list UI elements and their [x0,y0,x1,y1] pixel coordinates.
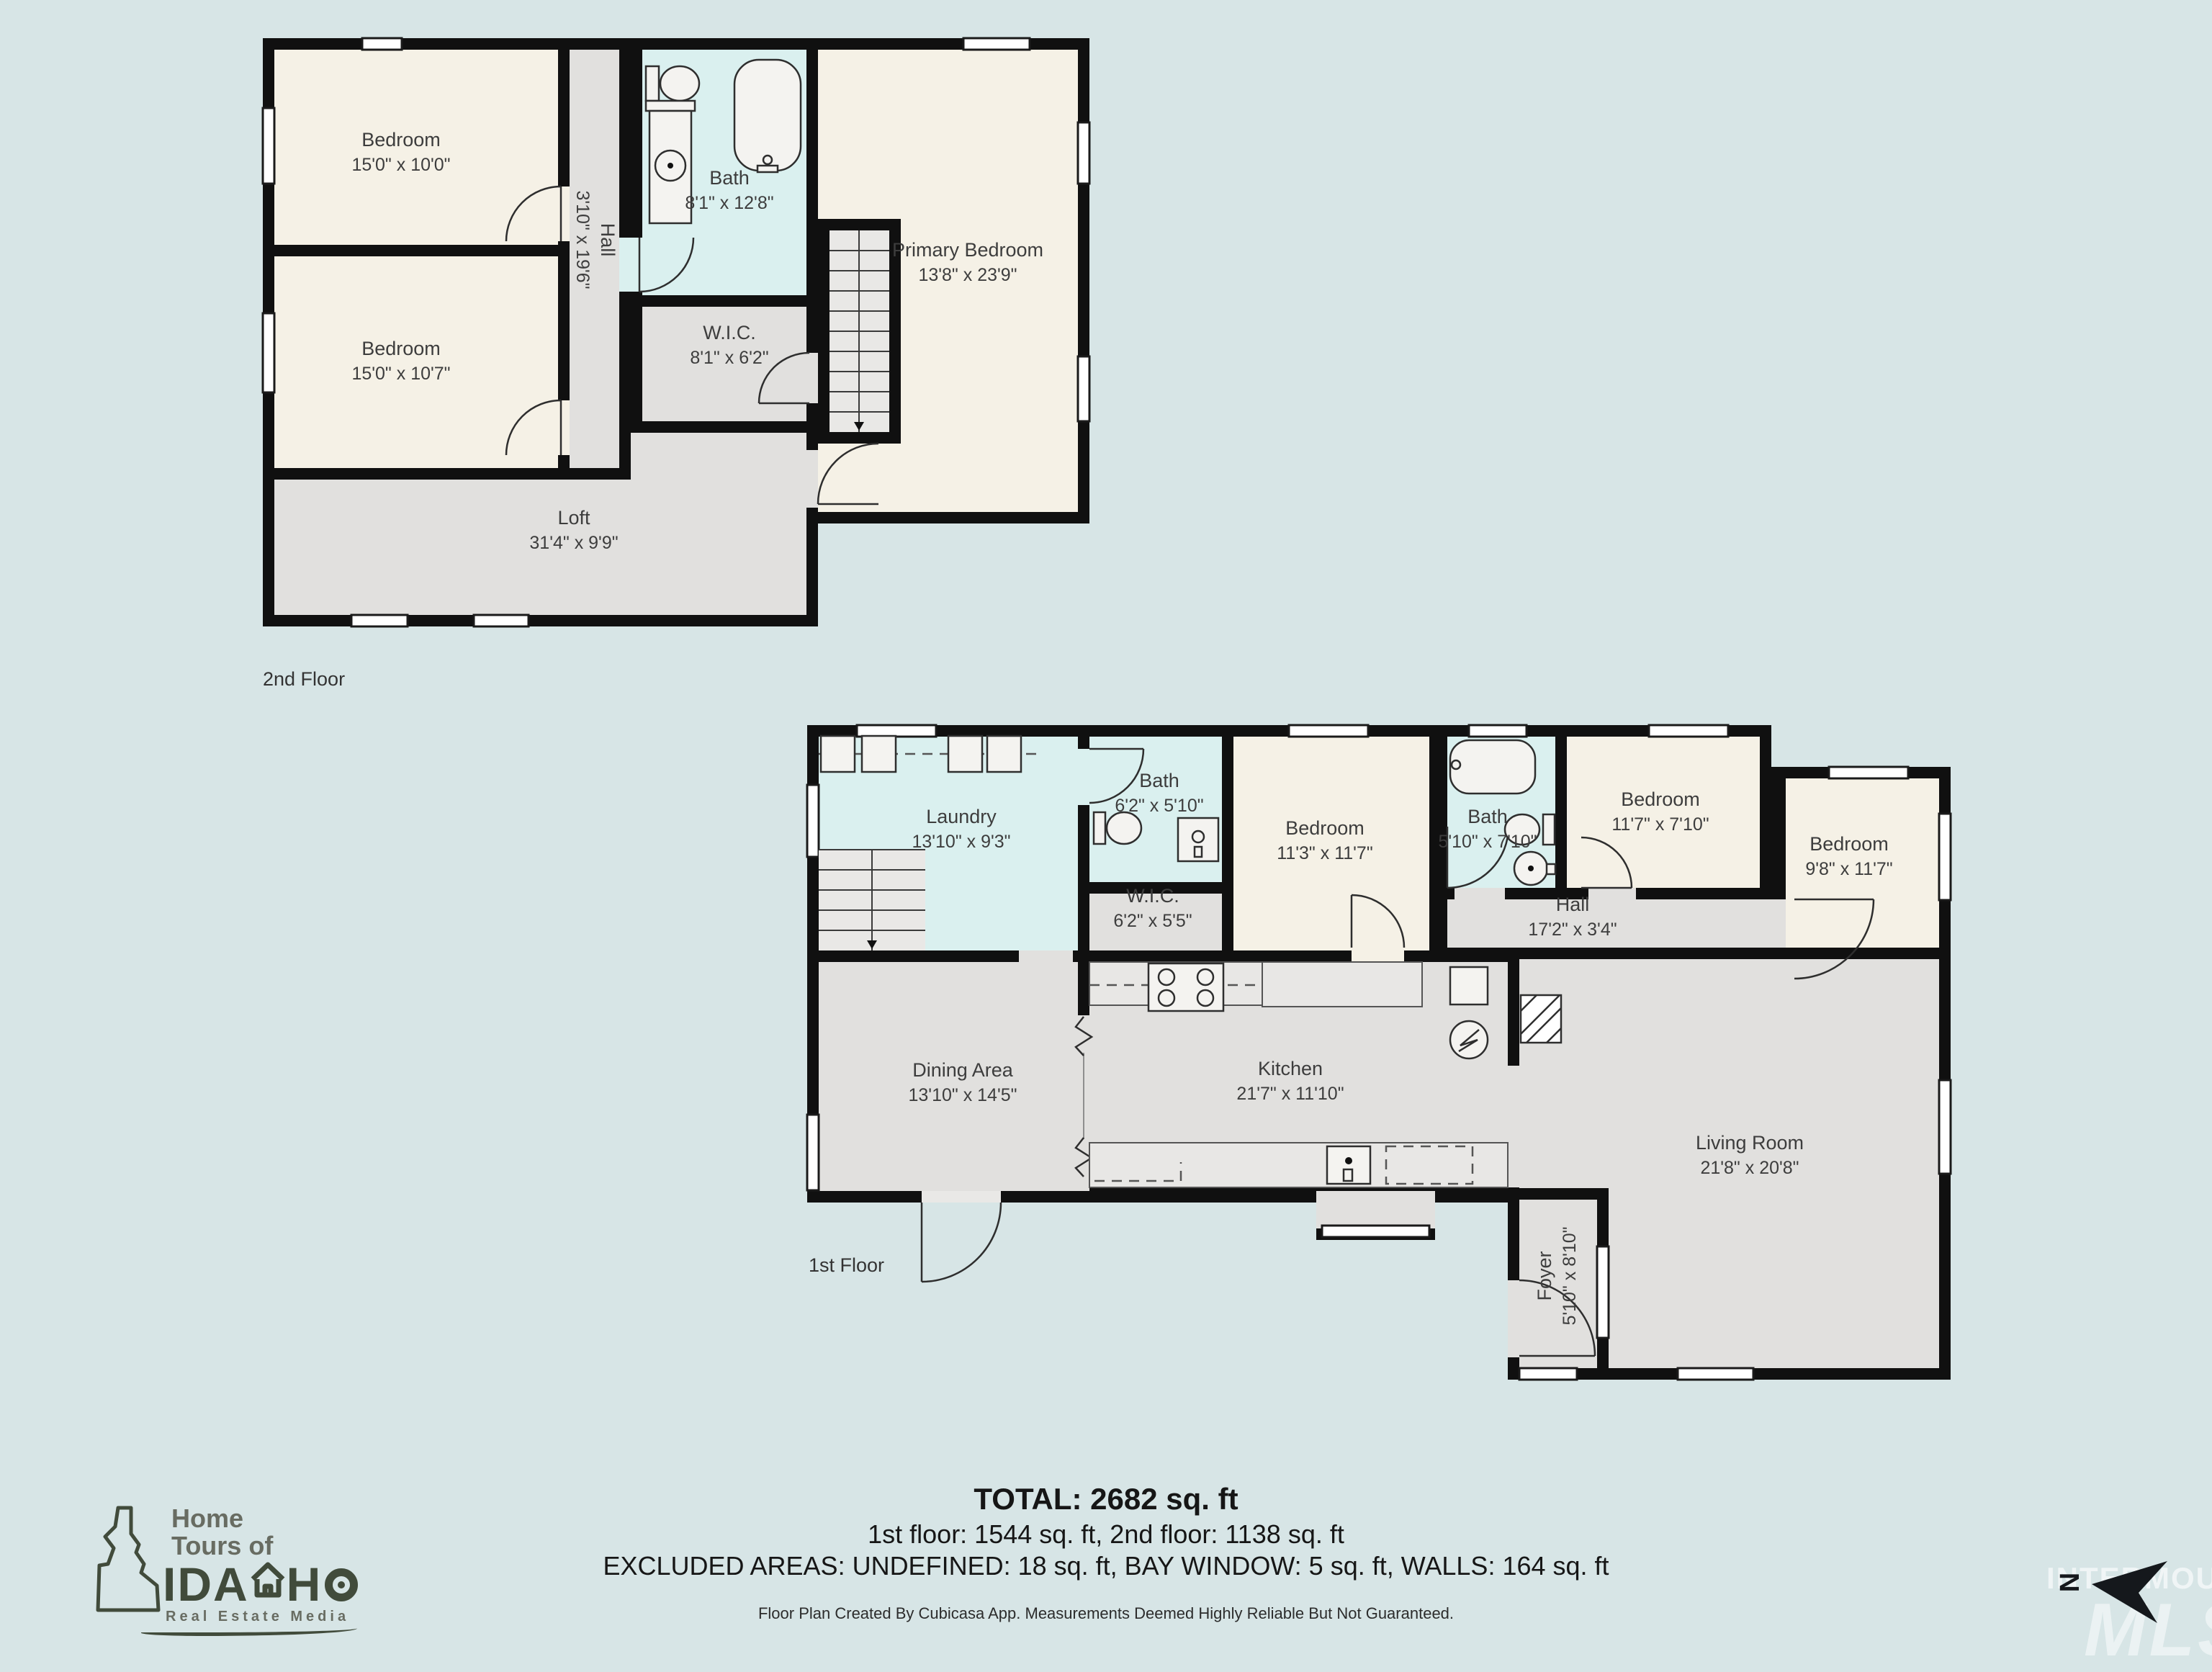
room-label-kitchen: Kitchen21'7" x 11'10" [1236,1056,1344,1107]
floor-label-1st: 1st Floor [809,1254,884,1277]
bathtub-icon [1450,740,1535,794]
logo-name-pre: IDA [163,1563,249,1606]
logo-name-post: H [287,1563,323,1606]
kitchen-sink-icon [1327,1146,1370,1184]
stairs-down [819,850,925,950]
room-label-bath-2nd: Bath8'1" x 12'8" [685,166,773,216]
room-label-primary-bedroom: Primary Bedroom13'8" x 23'9" [892,238,1043,288]
logo-name: IDAH [163,1560,358,1606]
room-label-foyer: Foyer5'10" x 8'10" [1532,1226,1583,1325]
room-label-bedroom-4: Bedroom11'7" x 7'10" [1611,787,1709,837]
logo-tagline: Real Estate Media [166,1609,358,1625]
floor-plan-canvas [0,0,2212,1659]
room-label-bedroom-2: Bedroom15'0" x 10'7" [351,336,450,387]
room-label-living-room: Living Room21'8" x 20'8" [1696,1131,1804,1181]
home-tours-of-idaho-logo: Home Tours of IDAH Real Estate Media [94,1505,358,1636]
room-label-wic-2nd: W.I.C.8'1" x 6'2" [690,320,768,371]
bay-window [1316,1191,1435,1237]
toilet-icon [646,66,699,101]
chimney-hatch [1521,995,1561,1043]
logo-underline [141,1625,357,1636]
room-label-laundry: Laundry13'10" x 9'3" [912,804,1010,855]
floor-label-2nd: 2nd Floor [263,668,345,691]
room-label-bedroom-5: Bedroom9'8" x 11'7" [1805,832,1892,882]
room-label-wic-1st: W.I.C.6'2" x 5'5" [1113,884,1192,934]
room-label-bath-2: Bath5'10" x 7'10" [1438,804,1537,855]
appliance-icon [1450,967,1488,1004]
water-heater-icon [1450,1021,1488,1059]
room-label-hall-1st: Hall17'2" x 3'4" [1528,892,1617,943]
room-label-bedroom-3: Bedroom11'3" x 11'7" [1277,816,1372,866]
room-label-dining-area: Dining Area13'10" x 14'5" [908,1058,1017,1108]
logo-line2: Tours of [171,1532,358,1560]
room-label-hall-2nd: Hall3'10" x 19'6" [570,190,620,289]
room-label-loft: Loft31'4" x 9'9" [529,505,618,556]
north-label: N [2055,1573,2086,1592]
second-floor-plan [263,38,1089,626]
house-icon [251,1560,285,1603]
room-label-bedroom-1: Bedroom15'0" x 10'0" [351,127,450,178]
stove-icon [1148,963,1223,1011]
logo-line1: Home [171,1505,358,1532]
aperture-icon [325,1568,358,1601]
room-label-bath-1: Bath6'2" x 5'10" [1115,768,1203,819]
bathtub-icon [734,60,801,172]
idaho-state-icon [94,1505,173,1613]
sink-icon [1178,818,1218,861]
